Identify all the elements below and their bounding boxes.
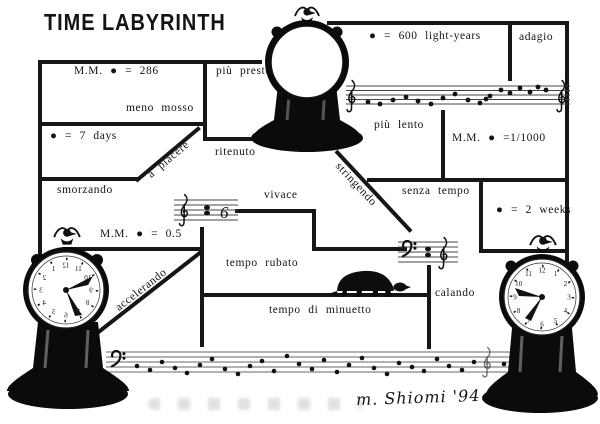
svg-text:9: 9 [513, 294, 517, 302]
tempo-label-tempo-rubato: tempo rubato [226, 258, 298, 270]
svg-text:1: 1 [51, 265, 55, 273]
artist-signature: m. Shiomi '94 [356, 386, 481, 409]
svg-text:6: 6 [540, 321, 544, 329]
tempo-label-mm-286: M.M. ● = 286 [74, 66, 159, 78]
svg-text:4: 4 [42, 299, 46, 307]
clock-face: 1 2 3 4 5 6 7 8 9 10 11 12 [499, 254, 585, 340]
maze-wall [203, 60, 207, 141]
tempo-label-tempo-di-minuetto: tempo di minuetto [269, 305, 372, 317]
alarm-clock-right: 1 2 3 4 5 6 7 8 9 10 11 12 [478, 228, 600, 420]
bird-ornament-icon [530, 236, 556, 253]
svg-text:3: 3 [39, 287, 43, 295]
staff-top-right [338, 76, 578, 118]
tempo-label-7-days: ● = 7 days [50, 131, 117, 143]
tempo-label-calando: calando [435, 288, 475, 300]
maze-wall [38, 122, 205, 126]
svg-text:11: 11 [525, 270, 532, 278]
maze-wall [508, 21, 512, 81]
svg-text:1: 1 [554, 270, 558, 278]
clock-face: 1 2 3 4 5 6 7 8 9 10 11 12 [23, 247, 109, 333]
clock-face-blank [265, 20, 349, 104]
svg-text:2: 2 [564, 280, 568, 288]
svg-text:9: 9 [89, 287, 93, 295]
svg-text:4: 4 [564, 307, 568, 315]
figure-six: 6 [220, 203, 229, 222]
maze-wall [235, 209, 315, 213]
svg-text:11: 11 [75, 265, 82, 273]
tempo-label-600-light-years: ● = 600 light-years [369, 31, 481, 43]
tempo-label-meno-mosso: meno mosso [126, 103, 194, 115]
svg-text:5: 5 [51, 308, 55, 316]
svg-text:5: 5 [554, 317, 558, 325]
svg-text:10: 10 [515, 280, 523, 288]
tempo-label-vivace: vivace [264, 190, 298, 202]
ghost-marks [148, 398, 363, 410]
maze-wall [427, 265, 431, 349]
maze-wall [441, 110, 445, 182]
maze-wall [312, 209, 316, 251]
svg-text:3: 3 [567, 294, 571, 302]
tempo-label-mm-1-1000: M.M. ● =1/1000 [452, 133, 546, 145]
treble-clef-icon [557, 81, 565, 112]
tempo-label-smorzando: smorzando [57, 185, 113, 197]
svg-text:6: 6 [64, 312, 68, 320]
turtle-illustration [323, 260, 413, 300]
maze-wall [200, 227, 204, 347]
clock-top-blank [243, 0, 371, 154]
maze-wall-diagonal [335, 150, 413, 233]
time-labyrinth-artwork: TIME LABYRINTH M.M. ● = 286 più presto m… [0, 0, 600, 424]
bass-clef-icon [403, 241, 417, 256]
staff-vivace: 6 [170, 190, 244, 232]
bird-ornament-icon [54, 228, 80, 245]
alarm-clock-left: 1 2 3 4 5 6 7 8 9 10 11 12 [0, 218, 144, 420]
maze-wall [38, 60, 262, 64]
tempo-label-piu-lento: più lento [374, 120, 424, 132]
svg-text:12: 12 [62, 262, 70, 270]
tempo-label-adagio: adagio [519, 32, 553, 44]
tempo-label-senza-tempo: senza tempo [402, 186, 470, 198]
page-title: TIME LABYRINTH [44, 10, 226, 37]
svg-text:12: 12 [539, 267, 547, 275]
maze-wall [38, 177, 138, 181]
maze-wall [315, 247, 407, 251]
svg-text:8: 8 [517, 307, 521, 315]
svg-text:8: 8 [85, 299, 89, 307]
svg-text:2: 2 [42, 274, 46, 282]
tempo-label-2-weeks: ● = 2 weeks [496, 205, 571, 217]
maze-wall [367, 178, 569, 182]
tempo-label-a-piacere: a piacere [146, 139, 192, 180]
